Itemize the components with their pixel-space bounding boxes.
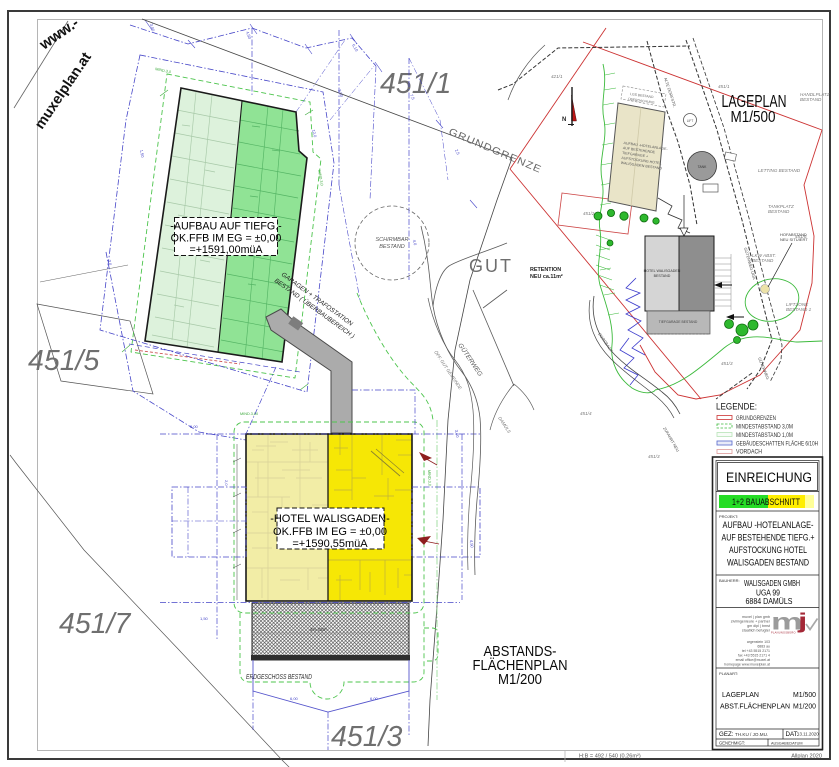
svg-text:BESTAND: BESTAND: [768, 209, 790, 214]
svg-text:BESTAND 1: BESTAND 1: [786, 307, 812, 312]
svg-text:M1/500: M1/500: [731, 109, 776, 126]
svg-text:muxel | plan gmb: muxel | plan gmb: [742, 615, 770, 619]
svg-text:451/3: 451/3: [331, 721, 402, 753]
svg-text:451/1: 451/1: [380, 68, 451, 100]
svg-text:WALISGADEN BESTAND: WALISGADEN BESTAND: [727, 557, 809, 568]
svg-text:ERDGESCHOSS BESTAND: ERDGESCHOSS BESTAND: [246, 674, 312, 681]
svg-text:6,00: 6,00: [290, 696, 299, 701]
svg-text:2,0: 2,0: [224, 480, 229, 486]
svg-text:ABST.FLÄCHENPLAN: ABST.FLÄCHENPLAN: [720, 702, 790, 711]
svg-text:N: N: [562, 117, 566, 123]
svg-text:MINDESTABSTAND 3,0M: MINDESTABSTAND 3,0M: [736, 425, 793, 431]
svg-text:gm dipl | bmst: gm dipl | bmst: [747, 624, 770, 628]
svg-text:451/2: 451/2: [583, 211, 595, 216]
svg-text:GUT: GUT: [469, 256, 513, 276]
svg-text:451/3: 451/3: [648, 454, 660, 459]
svg-text:Allplan 2020: Allplan 2020: [791, 754, 822, 760]
svg-text:451/7: 451/7: [59, 608, 131, 640]
svg-text:AUFBAU -HOTELANLAGE-: AUFBAU -HOTELANLAGE-: [723, 519, 814, 530]
svg-text:M1/500: M1/500: [793, 690, 816, 699]
svg-text:HOTEL WALISGADEN: HOTEL WALISGADEN: [644, 269, 681, 273]
svg-text:RETENTION: RETENTION: [530, 267, 561, 273]
svg-text:LAGEPLAN: LAGEPLAN: [722, 91, 787, 111]
svg-text:13.11.2020: 13.11.2020: [797, 732, 819, 737]
svg-text:BESTAND: BESTAND: [800, 97, 822, 102]
svg-text:-HOTEL WALISGADEN-: -HOTEL WALISGADEN-: [270, 513, 390, 525]
svg-text:GRUNDGRENZEN: GRUNDGRENZEN: [736, 416, 776, 422]
svg-text:tel +43 5515 2171: tel +43 5515 2171: [742, 649, 770, 653]
svg-text:421/1: 421/1: [551, 74, 563, 79]
svg-text:4% GEF.: 4% GEF.: [310, 627, 328, 632]
svg-text:PLANART:: PLANART:: [719, 671, 738, 676]
svg-text:EINREICHUNG: EINREICHUNG: [726, 470, 812, 485]
svg-text:451/6: 451/6: [795, 234, 807, 239]
svg-text:6884 DAMÜLS: 6884 DAMÜLS: [746, 596, 793, 606]
svg-text:LEGENDE:: LEGENDE:: [716, 402, 757, 412]
svg-text:staatlich befugter: staatlich befugter: [742, 629, 771, 633]
svg-text:M1/200: M1/200: [498, 672, 542, 688]
svg-text:BESTAND: BESTAND: [752, 258, 774, 263]
svg-text:LAGEPLAN: LAGEPLAN: [722, 690, 759, 699]
svg-text:TANK: TANK: [698, 165, 708, 169]
svg-text:=+1591,00müA: =+1591,00müA: [189, 244, 263, 256]
svg-text:argenstein 103: argenstein 103: [747, 640, 770, 644]
svg-text:fax +43 5515 2171 4: fax +43 5515 2171 4: [738, 654, 770, 658]
svg-text:451/3: 451/3: [721, 361, 733, 366]
svg-text:M1/200: M1/200: [793, 702, 816, 711]
svg-text:=+1590,55müA: =+1590,55müA: [292, 538, 368, 550]
svg-text:MINDESTABSTAND 1,0M: MINDESTABSTAND 1,0M: [736, 433, 793, 439]
svg-text:451/1: 451/1: [718, 84, 730, 89]
svg-text:1,50: 1,50: [200, 616, 209, 621]
svg-text:BAUHERR:: BAUHERR:: [719, 578, 740, 583]
svg-text:OK.FFB IM EG = ±0,00: OK.FFB IM EG = ±0,00: [273, 526, 387, 538]
svg-text:j: j: [797, 609, 808, 632]
svg-text:LIFT: LIFT: [687, 119, 694, 123]
svg-text:GEBÄUDESCHATTEN FLÄCHE 6/10H: GEBÄUDESCHATTEN FLÄCHE 6/10H: [736, 441, 818, 448]
svg-text:6883 au: 6883 au: [757, 645, 770, 649]
svg-text:GENEHMIGT:: GENEHMIGT:: [719, 741, 745, 746]
svg-text:homepage www.muxelplan.at: homepage www.muxelplan.at: [724, 663, 770, 667]
svg-text:LETTING BESTAND: LETTING BESTAND: [758, 168, 801, 173]
svg-text:4,50: 4,50: [469, 540, 475, 549]
svg-text:H:B = 492 / 540 (0.26m²): H:B = 492 / 540 (0.26m²): [579, 754, 641, 760]
svg-text:VORDACH: VORDACH: [736, 450, 762, 456]
svg-text:5,00: 5,00: [190, 424, 199, 429]
svg-text:AUSGABEDATUM: AUSGABEDATUM: [771, 742, 803, 746]
svg-text:SCHIRMBAR: SCHIRMBAR: [375, 237, 408, 243]
svg-text:NEU ca.11m²: NEU ca.11m²: [530, 274, 563, 280]
svg-text:zivilingenieure + partner: zivilingenieure + partner: [731, 620, 771, 624]
svg-text:PLANUNGSBÜRO: PLANUNGSBÜRO: [771, 631, 796, 635]
svg-text:1+2 BAUABSCHNITT: 1+2 BAUABSCHNITT: [732, 497, 800, 507]
svg-text:GEZ:: GEZ:: [719, 731, 734, 738]
svg-text:BESTAND: BESTAND: [654, 274, 671, 278]
svg-text:AUF BESTEHENDE TIEFG.+: AUF BESTEHENDE TIEFG.+: [722, 532, 815, 543]
svg-text:WALISGADEN GMBH: WALISGADEN GMBH: [744, 578, 800, 588]
svg-text:-AUFBAU AUF TIEFG.-: -AUFBAU AUF TIEFG.-: [170, 221, 282, 233]
svg-text:AUFSTOCKUNG HOTEL: AUFSTOCKUNG HOTEL: [729, 544, 807, 555]
svg-text:451/4: 451/4: [580, 411, 592, 416]
svg-text:MIND.3,0: MIND.3,0: [427, 470, 432, 486]
svg-text:451/5: 451/5: [28, 345, 99, 377]
svg-text:OK.FFB IM EG = ±0,00: OK.FFB IM EG = ±0,00: [171, 233, 282, 245]
svg-text:TIEFGARAGE BESTAND: TIEFGARAGE BESTAND: [659, 320, 698, 324]
svg-text:TH.KU / JO.MU.: TH.KU / JO.MU.: [735, 732, 768, 737]
svg-text:BESTAND: BESTAND: [379, 244, 405, 250]
svg-text:email office@muxel.at: email office@muxel.at: [736, 658, 770, 662]
